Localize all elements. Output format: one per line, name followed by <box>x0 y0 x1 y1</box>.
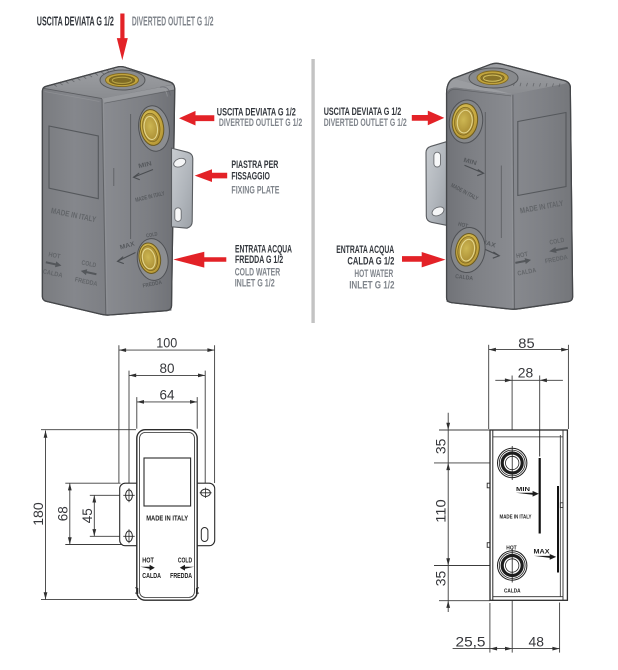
svg-text:MADE IN ITALY: MADE IN ITALY <box>500 515 532 521</box>
svg-text:68: 68 <box>55 506 71 521</box>
svg-text:100: 100 <box>156 335 177 351</box>
svg-text:INLET G 1/2: INLET G 1/2 <box>235 277 275 289</box>
svg-text:DIVERTED OUTLET G 1/2: DIVERTED OUTLET G 1/2 <box>132 14 214 28</box>
svg-text:MADE IN ITALY: MADE IN ITALY <box>146 514 188 523</box>
svg-text:MAX: MAX <box>534 548 551 555</box>
svg-text:48: 48 <box>529 635 545 651</box>
svg-text:CALDA: CALDA <box>504 588 521 594</box>
svg-text:HOT WATER: HOT WATER <box>354 268 393 280</box>
svg-text:110: 110 <box>434 499 450 523</box>
svg-text:DIVERTED OUTLET G 1/2: DIVERTED OUTLET G 1/2 <box>324 117 407 129</box>
svg-text:35: 35 <box>434 439 450 455</box>
svg-text:PIASTRA PER: PIASTRA PER <box>231 159 278 171</box>
svg-text:64: 64 <box>160 386 175 402</box>
svg-text:INLET G 1/2: INLET G 1/2 <box>349 280 394 292</box>
svg-text:FIXING PLATE: FIXING PLATE <box>231 184 279 196</box>
svg-text:CALDA G 1/2: CALDA G 1/2 <box>347 256 394 268</box>
svg-text:FREDDA: FREDDA <box>170 573 192 580</box>
svg-text:FREDDA G 1/2: FREDDA G 1/2 <box>235 254 283 266</box>
svg-text:DIVERTED OUTLET G 1/2: DIVERTED OUTLET G 1/2 <box>219 117 302 129</box>
svg-text:180: 180 <box>30 502 46 526</box>
svg-text:ENTRATA ACQUA: ENTRATA ACQUA <box>336 244 394 256</box>
svg-text:35: 35 <box>434 571 450 587</box>
svg-text:HOT: HOT <box>142 558 154 565</box>
svg-text:HOT: HOT <box>506 545 516 551</box>
svg-text:45: 45 <box>79 508 95 523</box>
svg-text:USCITA DEVIATA G 1/2: USCITA DEVIATA G 1/2 <box>37 14 114 28</box>
svg-text:80: 80 <box>160 360 175 376</box>
svg-text:COLD: COLD <box>178 558 192 565</box>
svg-text:85: 85 <box>518 336 534 352</box>
svg-text:25,5: 25,5 <box>456 635 486 651</box>
svg-text:MIN: MIN <box>516 487 530 493</box>
svg-text:CALDA: CALDA <box>142 573 161 580</box>
svg-text:FISSAGGIO: FISSAGGIO <box>231 171 270 183</box>
svg-text:28: 28 <box>518 366 534 382</box>
